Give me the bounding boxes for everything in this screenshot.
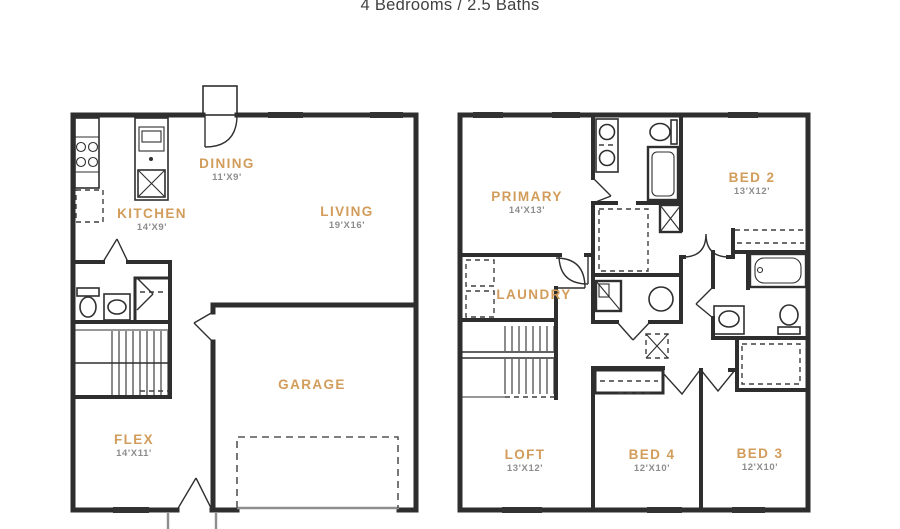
entry-door [203,86,237,147]
room-label-dining: DINING 11'X9' [199,157,255,183]
first-floor-windows [113,112,403,513]
first-floor-interior-walls [73,262,416,510]
bath2-tub-icon [750,254,806,287]
primary-toilet-icon [650,120,677,144]
room-label-loft: LOFT 13'X12' [505,448,546,474]
garage-door [237,437,399,508]
room-label-living: LIVING 19'X16' [320,205,373,231]
bed3-closet [742,344,800,384]
second-floor-doors [556,178,735,394]
floor-plan-image: 4 Bedrooms / 2.5 Baths [0,0,900,529]
room-label-bed3: BED 3 12'X10' [737,447,784,473]
linen-closet-icon [660,205,681,232]
washer-dryer-icons [466,260,494,317]
room-label-primary: PRIMARY 14'X13' [491,190,563,216]
hall-bath-sink-icon [649,287,673,311]
hall-bath-shower-icon [596,281,621,311]
primary-walk-in-closet [599,209,648,271]
bath2-toilet-icon [778,305,800,334]
room-label-kitchen: KITCHEN 14'X9' [117,207,187,233]
powder-toilet-icon [77,288,99,317]
second-floor-stairs [462,326,556,397]
room-label-bed2: BED 2 13'X12' [729,171,776,197]
primary-shower-icon [648,147,678,200]
room-label-bed4: BED 4 12'X10' [629,448,676,474]
bed4-closet [600,381,658,393]
bath2-sink-icon [714,306,744,334]
kitchen-counter [75,118,103,222]
room-label-flex: FLEX 14'X11' [114,433,154,459]
room-label-garage: GARAGE [278,378,346,392]
hall-linen-closet-icon [646,334,668,358]
bed2-closet [735,230,806,243]
first-floor-stairs [75,330,170,396]
room-label-laundry: LAUNDRY [496,288,571,302]
front-porch [168,513,216,529]
primary-vanity-icon [596,119,618,172]
kitchen-island [135,118,168,200]
first-floor-plan [73,86,416,529]
powder-sink-icon [104,294,130,320]
